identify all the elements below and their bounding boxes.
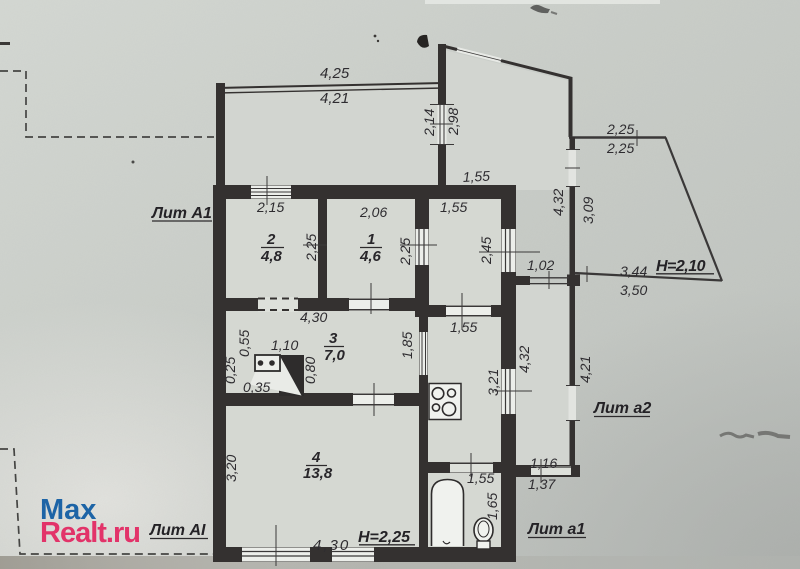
svg-text:2,25: 2,25 — [606, 140, 634, 156]
svg-text:Realt.ru: Realt.ru — [40, 517, 140, 549]
svg-text:2,25: 2,25 — [397, 238, 413, 266]
svg-text:1,85: 1,85 — [399, 332, 415, 359]
svg-text:3: 3 — [329, 330, 338, 347]
svg-text:3,09: 3,09 — [580, 197, 596, 224]
svg-text:4: 4 — [311, 449, 321, 466]
svg-text:0,35: 0,35 — [243, 379, 270, 395]
svg-text:1,65: 1,65 — [484, 493, 500, 520]
svg-text:0,25: 0,25 — [222, 357, 238, 384]
svg-text:1,55: 1,55 — [440, 199, 467, 215]
svg-text:4,21: 4,21 — [320, 90, 349, 107]
svg-text:4,21: 4,21 — [577, 356, 593, 383]
svg-text:4,32: 4,32 — [516, 346, 532, 373]
svg-text:1,55: 1,55 — [467, 470, 494, 486]
svg-text:3,44: 3,44 — [620, 263, 647, 279]
svg-text:0,80: 0,80 — [302, 357, 318, 384]
svg-text:Лит А1: Лит А1 — [151, 205, 212, 222]
svg-text:Лит АI: Лит АI — [149, 522, 206, 539]
svg-text:Лит а1: Лит а1 — [527, 521, 585, 538]
svg-text:1,55: 1,55 — [450, 319, 477, 335]
svg-text:2: 2 — [266, 231, 276, 248]
svg-text:2,25: 2,25 — [606, 121, 634, 137]
svg-text:2,15: 2,15 — [256, 199, 284, 215]
svg-text:4,30: 4,30 — [300, 309, 327, 325]
svg-text:4,32: 4,32 — [550, 189, 566, 216]
svg-text:2,14: 2,14 — [421, 109, 437, 137]
svg-text:2,45: 2,45 — [478, 237, 494, 265]
svg-text:3,20: 3,20 — [223, 455, 239, 482]
svg-text:3,50: 3,50 — [620, 282, 647, 298]
svg-text:4,25: 4,25 — [320, 65, 350, 82]
svg-text:1: 1 — [367, 231, 375, 248]
svg-text:7,0: 7,0 — [324, 347, 346, 364]
svg-text:3,21: 3,21 — [485, 369, 501, 396]
svg-text:H=2,25: H=2,25 — [358, 529, 411, 546]
svg-text:2,06: 2,06 — [359, 204, 387, 220]
svg-text:1,02: 1,02 — [527, 257, 554, 273]
svg-text:0,55: 0,55 — [236, 330, 252, 357]
svg-text:1,10: 1,10 — [271, 337, 298, 353]
svg-text:H=2,10: H=2,10 — [656, 258, 706, 275]
svg-text:1,37: 1,37 — [528, 476, 556, 492]
svg-text:Лит а2: Лит а2 — [593, 400, 651, 417]
svg-text:4,6: 4,6 — [359, 248, 382, 265]
svg-text:2,98: 2,98 — [445, 108, 461, 136]
svg-text:13,8: 13,8 — [303, 465, 333, 482]
svg-text:1,16: 1,16 — [530, 455, 557, 471]
svg-text:1,55: 1,55 — [462, 168, 490, 185]
svg-text:2,25: 2,25 — [303, 234, 319, 262]
svg-text:4,8: 4,8 — [260, 248, 283, 265]
svg-text:4,30: 4,30 — [313, 537, 350, 554]
